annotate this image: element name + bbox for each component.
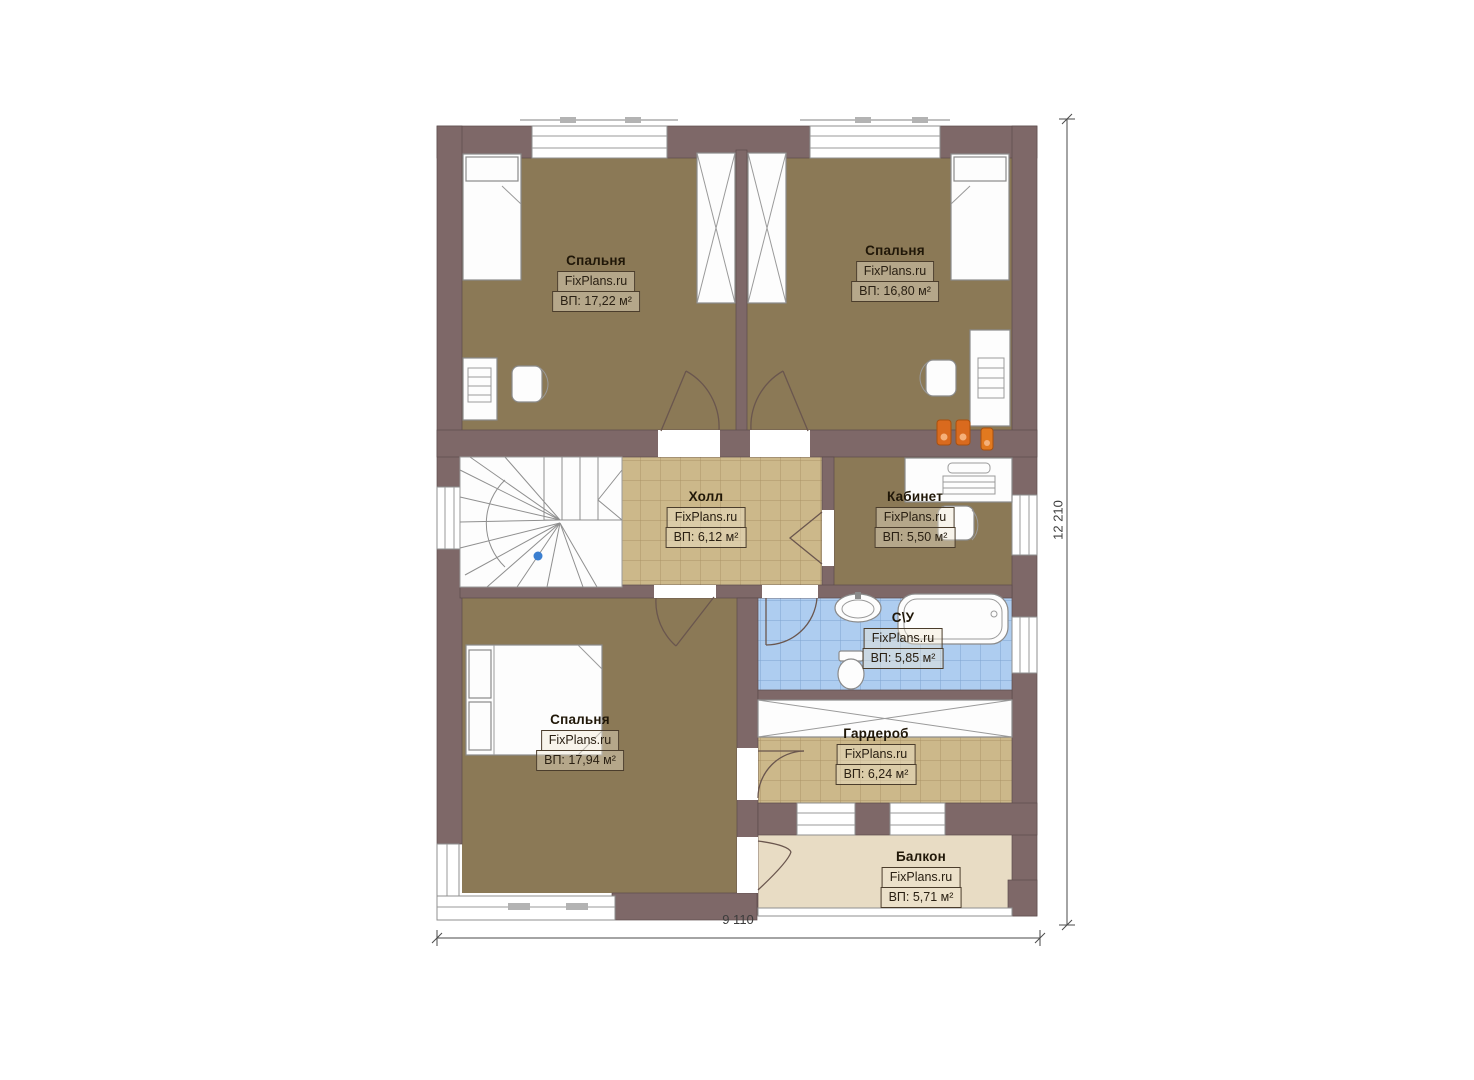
watermark-fixplans: FixPlans.ru — [856, 261, 935, 282]
room-area: ВП: 16,80 м² — [851, 281, 939, 302]
room-area: ВП: 5,71 м² — [881, 887, 962, 908]
bed-single-right-icon — [951, 154, 1009, 280]
room-name: Гардероб — [843, 726, 908, 741]
watermark-fixplans: FixPlans.ru — [882, 867, 961, 888]
window-right-office — [1012, 495, 1037, 555]
watermark-fixplans: FixPlans.ru — [557, 271, 636, 292]
room-label-balcony: Балкон FixPlans.ru ВП: 5,71 м² — [881, 849, 962, 908]
dimension-height-label: 12 210 — [1051, 500, 1066, 540]
room-name: Кабинет — [887, 489, 943, 504]
room-area: ВП: 17,22 м² — [552, 291, 640, 312]
room-name: Спальня — [550, 712, 610, 727]
watermark-fixplans: FixPlans.ru — [876, 507, 955, 528]
room-label-hall: Холл FixPlans.ru ВП: 6,12 м² — [666, 489, 747, 548]
closet-x-left-icon — [697, 153, 735, 303]
dimension-width-label: 9 110 — [722, 912, 754, 927]
room-name: Холл — [689, 489, 724, 504]
desk-left-icon — [463, 358, 497, 420]
watermark-fixplans: FixPlans.ru — [667, 507, 746, 528]
window-top-right — [810, 126, 940, 158]
room-label-wardrobe: Гардероб FixPlans.ru ВП: 6,24 м² — [836, 726, 917, 785]
room-name: Спальня — [566, 253, 626, 268]
toilet-icon — [838, 651, 864, 689]
desk-right-icon — [970, 330, 1010, 426]
room-area: ВП: 6,12 м² — [666, 527, 747, 548]
window-balcony-wall-left — [797, 803, 855, 835]
room-label-bedroom-tl: Спальня FixPlans.ru ВП: 17,22 м² — [552, 253, 640, 312]
room-label-bathroom: С\У FixPlans.ru ВП: 5,85 м² — [863, 610, 944, 669]
balcony-railing — [758, 908, 1012, 916]
closet-x-right-icon — [748, 153, 786, 303]
floor-plan-page: Спальня FixPlans.ru ВП: 17,22 м² Спальня… — [0, 0, 1474, 1080]
room-label-office: Кабинет FixPlans.ru ВП: 5,50 м² — [875, 489, 956, 548]
room-name: С\У — [892, 610, 915, 625]
window-right-bathroom — [1012, 617, 1037, 673]
room-area: ВП: 5,50 м² — [875, 527, 956, 548]
room-area: ВП: 17,94 м² — [536, 750, 624, 771]
room-area: ВП: 5,85 м² — [863, 648, 944, 669]
watermark-fixplans: FixPlans.ru — [541, 730, 620, 751]
stairs-icon — [460, 457, 622, 587]
roof-overhang-lines — [520, 117, 950, 123]
watermark-fixplans: FixPlans.ru — [837, 744, 916, 765]
room-label-bedroom-tr: Спальня FixPlans.ru ВП: 16,80 м² — [851, 243, 939, 302]
room-name: Балкон — [896, 849, 946, 864]
watermark-fixplans: FixPlans.ru — [864, 628, 943, 649]
window-balcony-wall-right — [890, 803, 945, 835]
window-top-left — [532, 126, 667, 158]
stairs-marker-dot — [534, 552, 543, 561]
bed-single-left-icon — [463, 154, 521, 280]
room-area: ВП: 6,24 м² — [836, 764, 917, 785]
room-name: Спальня — [865, 243, 925, 258]
room-label-bedroom-b: Спальня FixPlans.ru ВП: 17,94 м² — [536, 712, 624, 771]
window-left-stairs — [437, 487, 462, 549]
